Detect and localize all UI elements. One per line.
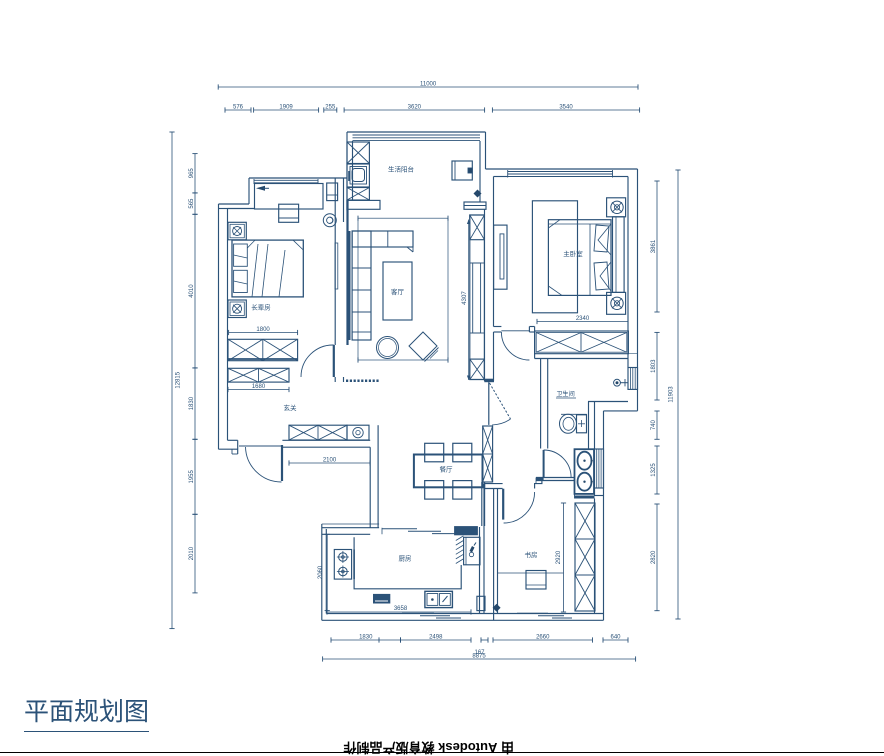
svg-text:4307: 4307 xyxy=(461,291,468,305)
svg-text:1830: 1830 xyxy=(189,396,195,410)
svg-text:12815: 12815 xyxy=(176,371,182,388)
svg-text:3658: 3658 xyxy=(394,606,408,612)
svg-text:厨房: 厨房 xyxy=(399,554,412,563)
svg-text:3620: 3620 xyxy=(408,105,422,111)
svg-text:1830: 1830 xyxy=(359,635,373,641)
svg-text:11903: 11903 xyxy=(669,386,675,403)
svg-text:576: 576 xyxy=(233,105,244,111)
svg-text:3861: 3861 xyxy=(651,239,657,253)
svg-text:2498: 2498 xyxy=(429,635,443,641)
svg-text:8875: 8875 xyxy=(472,654,486,660)
svg-text:1955: 1955 xyxy=(189,469,195,483)
svg-text:卫生间: 卫生间 xyxy=(556,390,575,398)
svg-text:2060: 2060 xyxy=(318,565,324,579)
svg-text:11000: 11000 xyxy=(420,82,437,88)
svg-text:1325: 1325 xyxy=(651,463,657,477)
svg-text:740: 740 xyxy=(651,419,657,430)
svg-text:3540: 3540 xyxy=(559,105,573,111)
svg-text:4010: 4010 xyxy=(189,284,195,298)
svg-text:1680: 1680 xyxy=(252,384,266,390)
svg-text:2100: 2100 xyxy=(323,458,337,464)
svg-text:1803: 1803 xyxy=(651,359,657,373)
svg-text:2660: 2660 xyxy=(536,635,550,641)
svg-text:客厅: 客厅 xyxy=(391,287,405,296)
svg-text:书房: 书房 xyxy=(525,550,538,559)
svg-text:255: 255 xyxy=(325,105,336,111)
svg-text:生活阳台: 生活阳台 xyxy=(388,165,414,174)
svg-text:640: 640 xyxy=(610,635,621,641)
svg-text:长辈房: 长辈房 xyxy=(251,303,271,312)
svg-text:餐厅: 餐厅 xyxy=(440,465,454,474)
svg-text:2340: 2340 xyxy=(576,316,590,322)
svg-text:565: 565 xyxy=(189,198,195,209)
svg-text:玄关: 玄关 xyxy=(284,403,298,412)
svg-text:965: 965 xyxy=(189,168,195,179)
svg-text:1909: 1909 xyxy=(279,105,293,111)
svg-text:2920: 2920 xyxy=(556,550,562,564)
svg-text:主卧室: 主卧室 xyxy=(563,249,583,258)
svg-text:2820: 2820 xyxy=(651,550,657,564)
svg-text:2010: 2010 xyxy=(189,546,195,560)
svg-text:1800: 1800 xyxy=(256,327,270,333)
